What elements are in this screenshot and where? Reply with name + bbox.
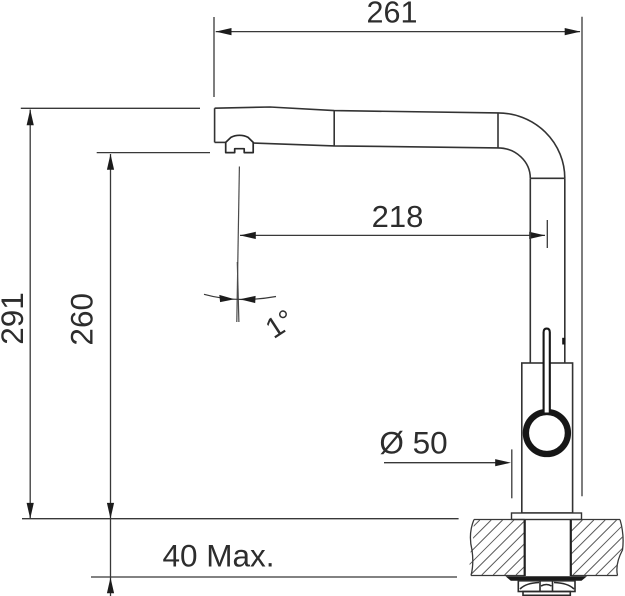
- svg-text:260: 260: [64, 293, 100, 346]
- svg-text:40 Max.: 40 Max.: [162, 538, 274, 574]
- svg-text:Ø 50: Ø 50: [379, 425, 447, 461]
- svg-text:218: 218: [372, 199, 424, 234]
- svg-text:291: 291: [0, 292, 30, 345]
- svg-text:261: 261: [367, 0, 418, 29]
